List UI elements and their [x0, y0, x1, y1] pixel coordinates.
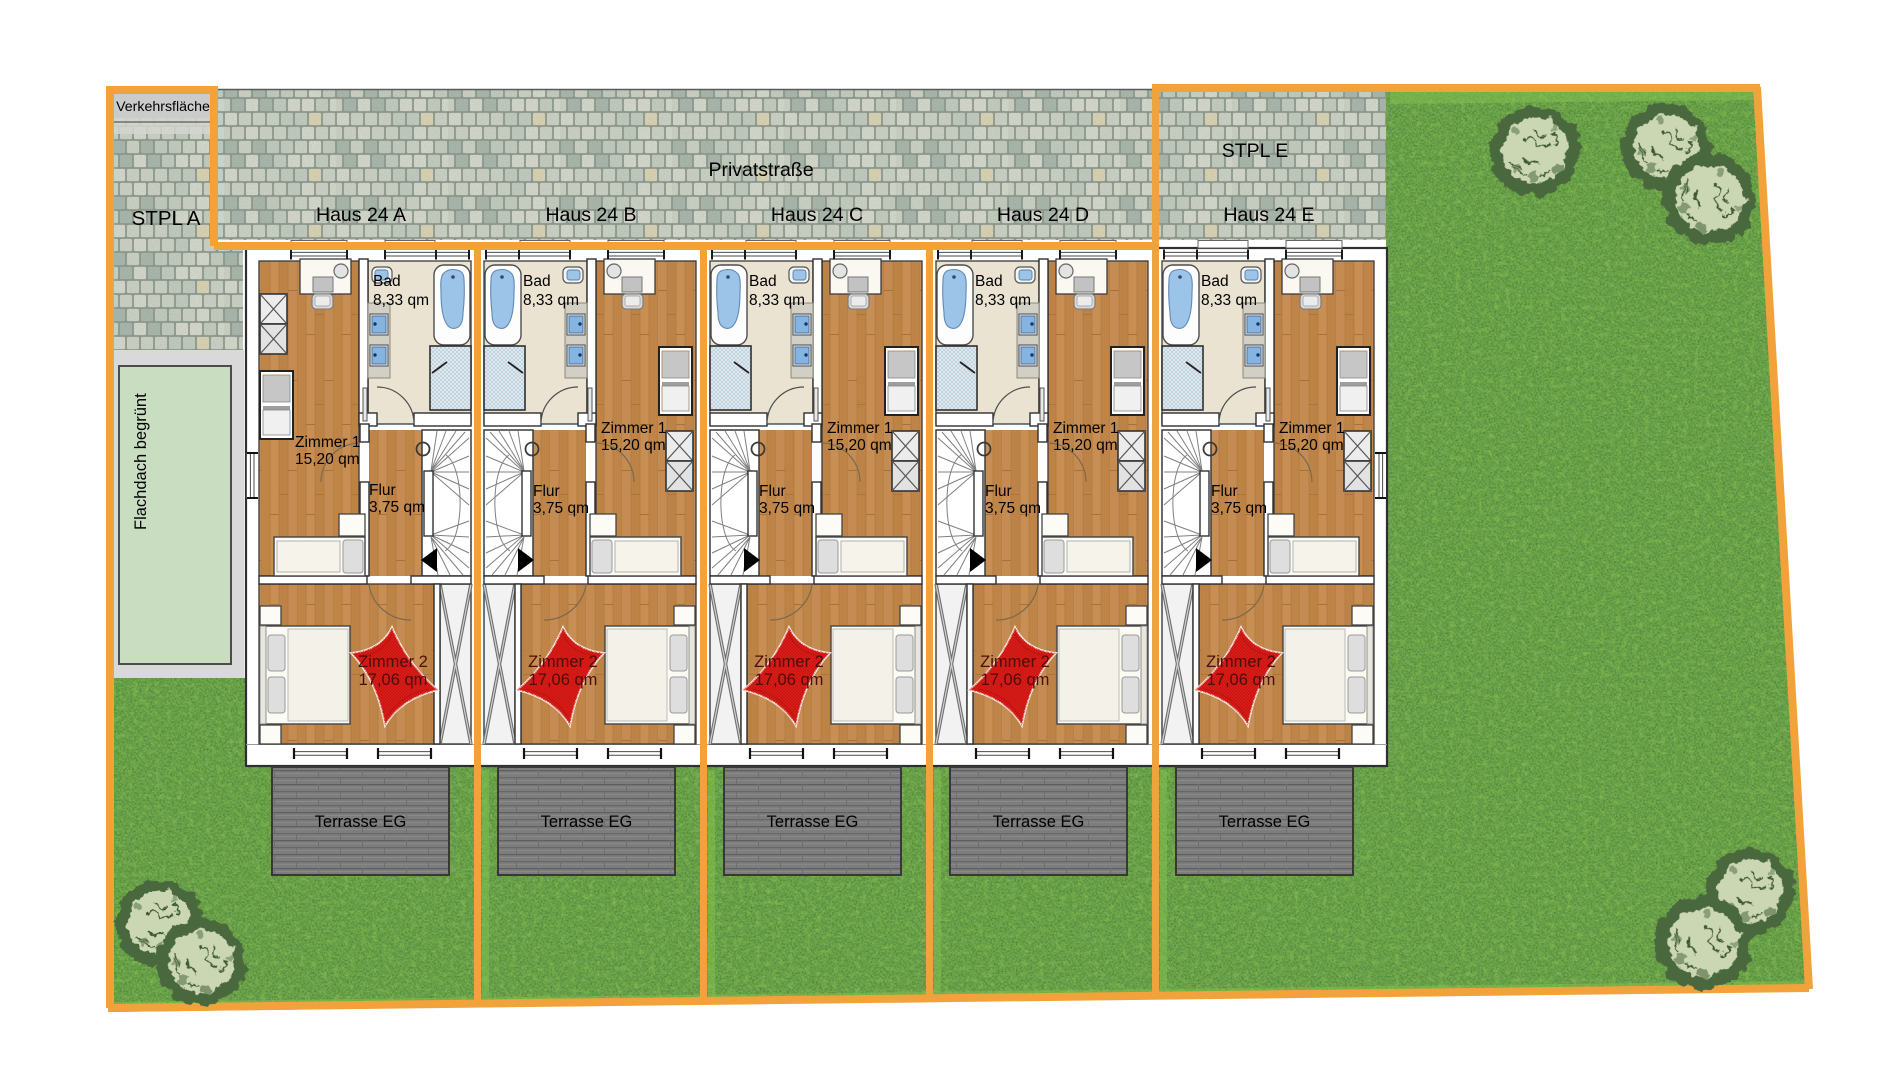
svg-text:Bad: Bad	[975, 273, 1003, 290]
svg-text:8,33 qm: 8,33 qm	[975, 292, 1031, 309]
svg-text:8,33 qm: 8,33 qm	[523, 292, 579, 309]
svg-text:Terrasse EG: Terrasse EG	[315, 813, 407, 831]
svg-text:Bad: Bad	[373, 273, 401, 290]
svg-text:Zimmer 2: Zimmer 2	[980, 653, 1050, 671]
svg-text:8,33 qm: 8,33 qm	[373, 292, 429, 309]
svg-text:17,06 qm: 17,06 qm	[529, 671, 598, 689]
svg-text:15,20 qm: 15,20 qm	[601, 437, 666, 454]
svg-text:Zimmer 1: Zimmer 1	[601, 420, 666, 437]
svg-text:Zimmer 1: Zimmer 1	[1279, 420, 1344, 437]
svg-text:3,75 qm: 3,75 qm	[533, 500, 589, 517]
svg-text:Zimmer 1: Zimmer 1	[827, 420, 892, 437]
svg-text:Haus 24 E: Haus 24 E	[1223, 204, 1314, 226]
svg-text:Terrasse EG: Terrasse EG	[993, 813, 1085, 831]
svg-text:Terrasse EG: Terrasse EG	[1219, 813, 1311, 831]
svg-text:Zimmer 2: Zimmer 2	[528, 653, 598, 671]
svg-text:17,06 qm: 17,06 qm	[981, 671, 1050, 689]
svg-text:STPL A: STPL A	[132, 207, 201, 230]
svg-text:15,20 qm: 15,20 qm	[827, 437, 892, 454]
svg-text:17,06 qm: 17,06 qm	[755, 671, 824, 689]
svg-text:Haus 24 D: Haus 24 D	[997, 204, 1089, 226]
svg-text:15,20 qm: 15,20 qm	[1053, 437, 1118, 454]
svg-text:Zimmer 1: Zimmer 1	[295, 434, 360, 451]
svg-text:Zimmer 2: Zimmer 2	[754, 653, 824, 671]
svg-text:Flachdach begrünt: Flachdach begrünt	[132, 393, 150, 530]
svg-text:Bad: Bad	[749, 273, 777, 290]
svg-text:Haus 24 A: Haus 24 A	[316, 204, 406, 226]
svg-text:Zimmer 2: Zimmer 2	[1206, 653, 1276, 671]
svg-text:Privatstraße: Privatstraße	[708, 159, 813, 181]
svg-text:Flur: Flur	[1211, 483, 1238, 500]
svg-text:3,75 qm: 3,75 qm	[1211, 500, 1267, 517]
svg-text:Verkehrsfläche: Verkehrsfläche	[116, 99, 210, 115]
svg-text:Flur: Flur	[533, 483, 560, 500]
svg-text:Flur: Flur	[759, 483, 786, 500]
svg-text:15,20 qm: 15,20 qm	[295, 451, 360, 468]
svg-text:15,20 qm: 15,20 qm	[1279, 437, 1344, 454]
svg-text:Zimmer 1: Zimmer 1	[1053, 420, 1118, 437]
svg-text:3,75 qm: 3,75 qm	[369, 499, 425, 516]
svg-text:Haus 24 C: Haus 24 C	[771, 204, 863, 226]
svg-text:17,06 qm: 17,06 qm	[359, 671, 428, 689]
svg-text:8,33 qm: 8,33 qm	[1201, 292, 1257, 309]
svg-text:17,06 qm: 17,06 qm	[1207, 671, 1276, 689]
svg-text:Terrasse EG: Terrasse EG	[767, 813, 859, 831]
svg-text:Haus 24 B: Haus 24 B	[545, 204, 636, 226]
svg-text:Bad: Bad	[1201, 273, 1229, 290]
svg-text:Flur: Flur	[369, 482, 396, 499]
svg-text:Bad: Bad	[523, 273, 551, 290]
svg-text:Terrasse EG: Terrasse EG	[541, 813, 633, 831]
svg-text:Flur: Flur	[985, 483, 1012, 500]
svg-text:STPL E: STPL E	[1222, 140, 1288, 162]
svg-text:3,75 qm: 3,75 qm	[759, 500, 815, 517]
svg-text:Zimmer 2: Zimmer 2	[358, 653, 428, 671]
svg-text:3,75 qm: 3,75 qm	[985, 500, 1041, 517]
svg-text:8,33 qm: 8,33 qm	[749, 292, 805, 309]
